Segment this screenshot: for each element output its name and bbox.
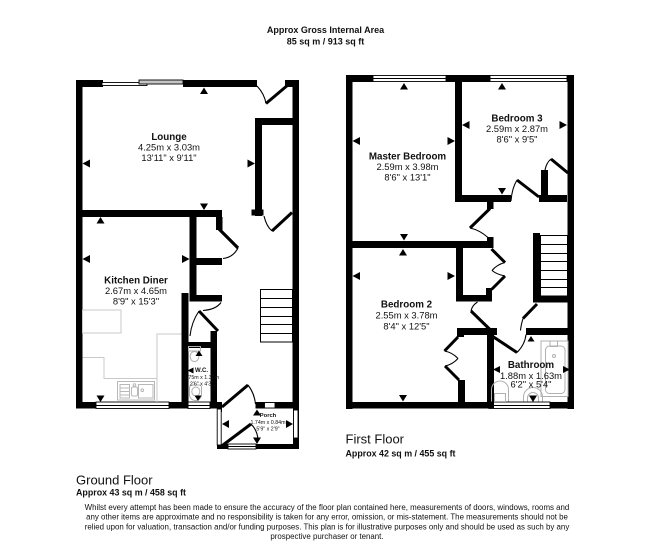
svg-text:Approx 42 sq m / 455 sq ft: Approx 42 sq m / 455 sq ft [346,449,456,459]
svg-text:Ground Floor: Ground Floor [76,473,153,488]
svg-text:1.74m x 0.84m: 1.74m x 0.84m [250,420,286,426]
svg-text:85 sq m / 913 sq ft: 85 sq m / 913 sq ft [287,37,365,47]
svg-text:Approx Gross Internal Area: Approx Gross Internal Area [267,25,385,35]
svg-text:Porch: Porch [260,413,277,419]
svg-text:2.59m x 2.87m: 2.59m x 2.87m [486,123,548,134]
svg-text:8'4" x 12'5": 8'4" x 12'5" [383,321,429,332]
svg-text:W.C.: W.C. [195,368,208,374]
svg-text:8'6" x 9'5": 8'6" x 9'5" [497,134,538,145]
svg-text:Whilst every attempt has been: Whilst every attempt has been made to en… [85,503,570,512]
svg-text:any other items are approximat: any other items are approximate and no r… [86,513,568,522]
svg-text:2'6" x 4'3": 2'6" x 4'3" [190,381,213,387]
svg-text:6'2" x 5'4": 6'2" x 5'4" [511,379,552,390]
svg-text:relied upon for valuation, tra: relied upon for valuation, transaction a… [85,522,570,531]
svg-text:2.59m x 3.98m: 2.59m x 3.98m [376,161,438,172]
svg-text:8'6" x 13'1": 8'6" x 13'1" [384,172,430,183]
svg-text:5'9" x 2'9": 5'9" x 2'9" [256,427,279,433]
svg-text:2.67m x 4.65m: 2.67m x 4.65m [105,285,167,296]
svg-text:Approx 43 sq m / 458 sq ft: Approx 43 sq m / 458 sq ft [76,488,186,498]
svg-text:4.25m x 3.03m: 4.25m x 3.03m [138,142,200,153]
svg-text:prospective purchaser or tenan: prospective purchaser or tenant. [270,532,383,541]
svg-text:2.55m x 3.78m: 2.55m x 3.78m [375,310,437,321]
svg-text:First Floor: First Floor [346,432,405,447]
svg-text:1.75m x 1.30m: 1.75m x 1.30m [184,375,220,381]
svg-text:8'9" x 15'3": 8'9" x 15'3" [113,296,159,307]
svg-text:13'11" x 9'11": 13'11" x 9'11" [141,152,196,163]
